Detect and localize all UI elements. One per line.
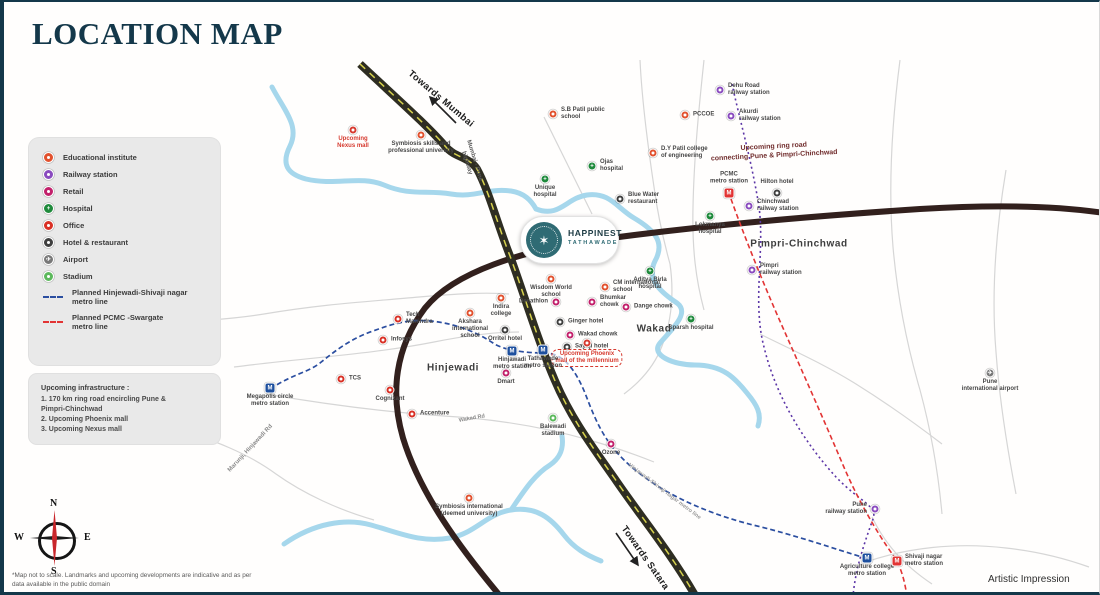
agriculture-college-metro-station: M [862,553,873,564]
infrastructure-list: 1. 170 km ring road encircling Pune & Pi… [41,395,210,436]
legend-item-line-blue: Planned Hinjewadi-Shivaji nagarmetro lin… [43,288,210,307]
line-blue-dash-icon [43,296,63,298]
cognizant-label: Cognizant [376,396,405,403]
compass-north: N [50,498,57,509]
legend-label: Office [63,221,84,230]
unique-hospital: + [541,175,550,184]
dange-chowk-label: Dange chowk [634,303,673,310]
retail-icon [502,369,511,378]
legend-item-airport: ✈Airport [43,254,210,265]
rail-icon [745,202,754,211]
dmart [502,369,511,378]
edu-icon [43,152,54,163]
hospital-icon: + [646,267,655,276]
legend-label: Planned PCMC -Swargatemetro line [72,313,163,332]
ozone-label: Ozone [602,450,620,457]
compass-east: E [84,532,91,543]
akurdi-railway-station [727,112,736,121]
metro-blue-icon: M [265,383,276,394]
metro-red-icon: M [892,556,903,567]
pcmc-swargate-metro-line [731,199,907,595]
balewadi-stadium-label: Balewadistadium [540,424,566,438]
balewadi-stadium [549,414,558,423]
infrastructure-title: Upcoming infrastructure : [41,383,210,392]
tathawade-metro-station-label: Tathawademetro station [524,356,562,370]
dy-patil-college [649,149,658,158]
ginger-hotel-label: Ginger hotel [568,318,603,325]
artistic-impression-note: Artistic Impression [988,574,1070,585]
symbiosis-international-university-label: Symbiosis international(deemed universit… [435,504,503,518]
infrastructure-panel: Upcoming infrastructure : 1. 170 km ring… [29,374,220,444]
infosys-label: Infosys [391,336,412,343]
hotel-icon [501,326,510,335]
blue-water-restaurant-label: Blue Waterrestaurant [628,192,659,206]
pimpri-railway-station [748,266,757,275]
logo-subtitle: TATHAWADE [568,240,622,246]
logo-title: HAPPINEST [568,228,622,238]
tech-mahindra [394,315,403,324]
office-icon [337,375,346,384]
dmart-label: Dmart [497,379,514,386]
rail-icon [716,86,725,95]
lokmanya-hospital-label: Lokmanyahospital [695,222,725,236]
hotel-icon [43,237,54,248]
infrastructure-line: 1. 170 km ring road encircling Pune & [41,395,210,405]
sb-patil-public-school [549,110,558,119]
hinjawadi-metro-station: M [507,346,518,357]
indira-college [497,294,506,303]
cognizant [386,386,395,395]
decathlon-label: Decathlon [519,298,548,305]
metro-blue-icon: M [507,346,518,357]
area-wakad: Wakad [637,324,672,335]
legend-label: Hotel & restaurant [63,238,128,247]
tcs [337,375,346,384]
unique-hospital-label: Uniquehospital [533,185,556,199]
upcoming-icon [349,126,358,135]
compass-ring [38,522,76,560]
tcs-label: TCS [349,375,361,382]
symbiosis-skills-university-label: Symbiosis skills andprofessional univers… [388,141,454,155]
stadium-icon [549,414,558,423]
agriculture-college-metro-station-label: Agriculture collegemetro station [840,564,894,578]
retail-icon [566,331,575,340]
edu-icon [497,294,506,303]
metro-blue-icon: M [862,553,873,564]
retail-icon [588,298,597,307]
edu-icon [549,110,558,119]
accenture-label: Accenture [420,410,449,417]
decathlon [552,298,561,307]
retail-icon [43,186,54,197]
chinchwad-railway-station [745,202,754,211]
edu-icon [466,309,475,318]
office-icon [386,386,395,395]
rail-icon [727,112,736,121]
upcoming-phoenix-mall [583,339,592,348]
pcmc-metro-station-label: PCMCmetro station [710,172,748,186]
sparsh-hospital-label: Sparsh hospital [668,325,713,332]
metro-red-icon: M [724,188,735,199]
airport-icon: ✈ [43,254,54,265]
chinchwad-railway-station-label: Chinchwadrailway station [757,199,799,213]
edu-icon [681,111,690,120]
legend-item-hotel: Hotel & restaurant [43,237,210,248]
akshara-international-school [466,309,475,318]
ginger-hotel [556,318,565,327]
hospital-icon: + [706,212,715,221]
compass-rose: N S W E [12,502,92,578]
orritel-hotel [501,326,510,335]
aditya-birla-hospital: + [646,267,655,276]
legend-label: Retail [63,187,83,196]
symbiosis-skills-university [417,131,426,140]
upcoming-phoenix-mall-label: Upcoming Phoenixmall of the millennium [551,349,622,367]
infrastructure-line: Pimpri-Chinchwad [41,405,210,415]
akshara-international-school-label: Aksharainternationalschool [452,319,488,341]
pune-international-airport: ✈ [986,369,995,378]
shivaji-nagar-metro-station: M [892,556,903,567]
pune-railway-station [871,505,880,514]
hotel-icon [556,318,565,327]
sb-patil-public-school-label: S.B Patil publicschool [561,107,605,121]
map-disclaimer: *Map not to scale. Landmarks and upcomin… [12,572,262,589]
pccoe-label: PCCOE [693,111,714,118]
symbiosis-international-university [465,494,474,503]
hospital-icon: + [43,203,54,214]
legend-item-hospital: +Hospital [43,203,210,214]
megapolis-circle-metro-station: M [265,383,276,394]
rail-icon [43,169,54,180]
project-logo-card: ✶ HAPPINEST TATHAWADE [520,216,619,264]
aditya-birla-hospital-label: Aditya Birlahospital [633,277,666,291]
sparsh-hospital: + [687,315,696,324]
legend-label: Airport [63,255,88,264]
tech-mahindra-label: TechMahindra [406,312,433,326]
hospital-icon: + [588,162,597,171]
office-icon [394,315,403,324]
legend-item-retail: Retail [43,186,210,197]
dange-chowk [622,303,631,312]
upcoming-icon [583,339,592,348]
metro-blue-icon: M [538,345,549,356]
upcoming-mall-nw-label: UpcomingNexus mall [337,136,369,150]
hilton-hotel [773,189,782,198]
ojas-hospital-label: Ojashospital [600,159,623,173]
line-red-dash-icon [43,321,63,323]
hospital-icon: + [541,175,550,184]
upcoming-mall-nw [349,126,358,135]
dehu-road-railway-station [716,86,725,95]
indira-college-label: Indiracollege [491,304,512,318]
happinest-logo-icon: ✶ [526,222,562,258]
orritel-hotel-label: Orritel hotel [488,336,522,343]
office-icon [43,220,54,231]
hilton-hotel-label: Hilton hotel [761,179,794,186]
edu-icon [547,275,556,284]
infrastructure-line: 2. Upcoming Phoenix mall [41,415,210,425]
office-icon [408,410,417,419]
retail-icon [607,440,616,449]
hospital-icon: + [687,315,696,324]
area-hinjewadi: Hinjewadi [427,363,479,374]
legend-label: Educational institute [63,153,137,162]
megapolis-circle-metro-station-label: Megapolis circlemetro station [247,394,294,408]
bhumkar-chowk [588,298,597,307]
wisdom-world-school [547,275,556,284]
edu-icon [601,283,610,292]
pune-railway-station-label: Punerailway station [825,502,867,516]
hotel-icon [616,195,625,204]
legend-label: Railway station [63,170,118,179]
lokmanya-hospital: + [706,212,715,221]
pimpri-railway-station-label: Pimprirailway station [760,263,802,277]
akurdi-railway-station-label: Akurdirailway station [739,109,781,123]
legend-panel: Educational instituteRailway stationReta… [29,138,220,365]
pune-international-airport-label: Puneinternational airport [962,379,1019,393]
tathawade-metro-station: M [538,345,549,356]
retail-icon [622,303,631,312]
legend-item-line-red: Planned PCMC -Swargatemetro line [43,313,210,332]
infrastructure-line: 3. Upcoming Nexus mall [41,425,210,435]
legend-label: Stadium [63,272,93,281]
area-pimpri-chinchwad: Pimpri-Chinchwad [750,239,847,250]
compass-west: W [14,532,24,543]
cm-international-school [601,283,610,292]
accenture [408,410,417,419]
legend-item-office: Office [43,220,210,231]
pccoe [681,111,690,120]
dehu-road-railway-station-label: Dehu Roadrailway station [728,83,770,97]
pcmc-metro-station: M [724,188,735,199]
legend-label: Planned Hinjewadi-Shivaji nagarmetro lin… [72,288,187,307]
wakad-chowk [566,331,575,340]
ozone [607,440,616,449]
edu-icon [417,131,426,140]
edu-icon [649,149,658,158]
rail-icon [748,266,757,275]
shivaji-nagar-metro-station-label: Shivaji nagarmetro station [905,554,943,568]
blue-water-restaurant [616,195,625,204]
dy-patil-college-label: D.Y Patil collegeof engineering [661,146,708,160]
legend-item-edu: Educational institute [43,152,210,163]
location-map-page: LOCATION MAP [0,0,1100,595]
legend-item-rail: Railway station [43,169,210,180]
legend-label: Hospital [63,204,93,213]
legend-item-stadium: Stadium [43,271,210,282]
infosys [379,336,388,345]
ojas-hospital: + [588,162,597,171]
airport-icon: ✈ [986,369,995,378]
office-icon [379,336,388,345]
retail-icon [552,298,561,307]
edu-icon [465,494,474,503]
hotel-icon [773,189,782,198]
rail-icon [871,505,880,514]
stadium-icon [43,271,54,282]
